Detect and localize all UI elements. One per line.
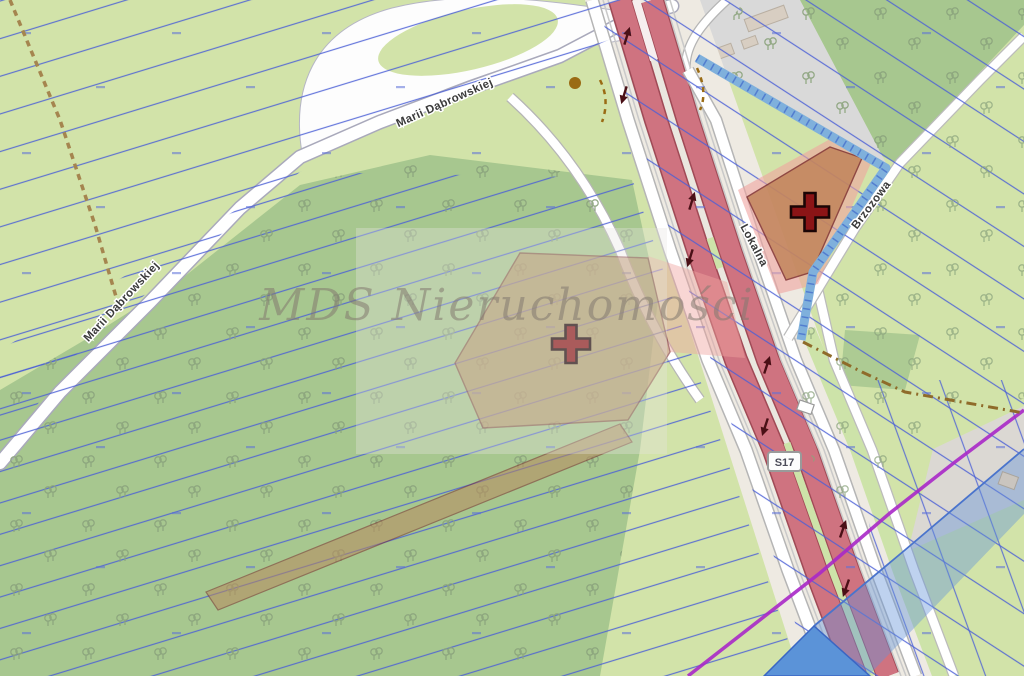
tree-poi-dot — [569, 77, 581, 89]
route-shield-text: S17 — [775, 457, 795, 469]
route-shield-s17: S17 — [768, 452, 801, 471]
map-viewport[interactable]: S17 Marii Dąbrowskiej Marii Dąbrowskiej … — [0, 0, 1024, 676]
watermark-box — [356, 228, 667, 454]
map-canvas[interactable]: S17 Marii Dąbrowskiej Marii Dąbrowskiej … — [0, 0, 1024, 676]
watermark-text: MDS Nieruchomości — [258, 280, 754, 331]
